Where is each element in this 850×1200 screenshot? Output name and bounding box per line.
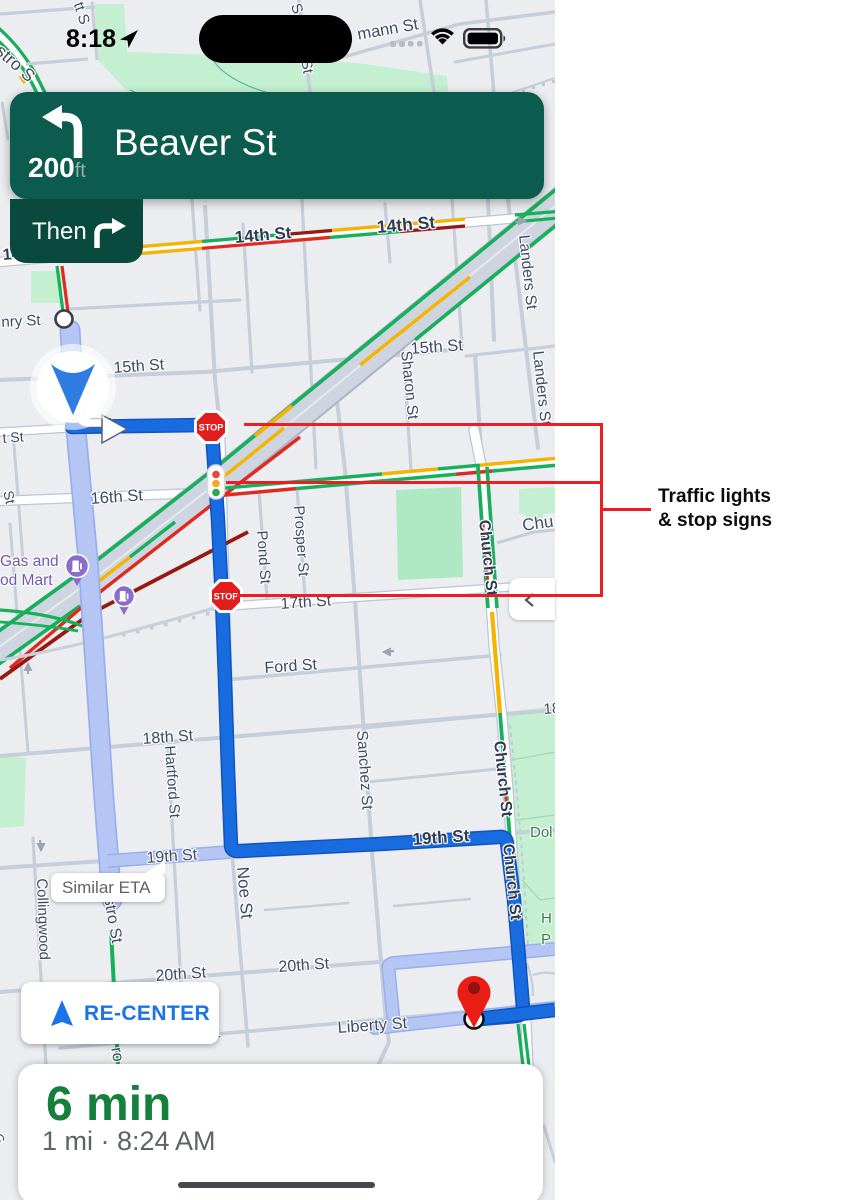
svg-text:STOP: STOP: [214, 592, 239, 602]
svg-text:STOP: STOP: [199, 423, 224, 433]
